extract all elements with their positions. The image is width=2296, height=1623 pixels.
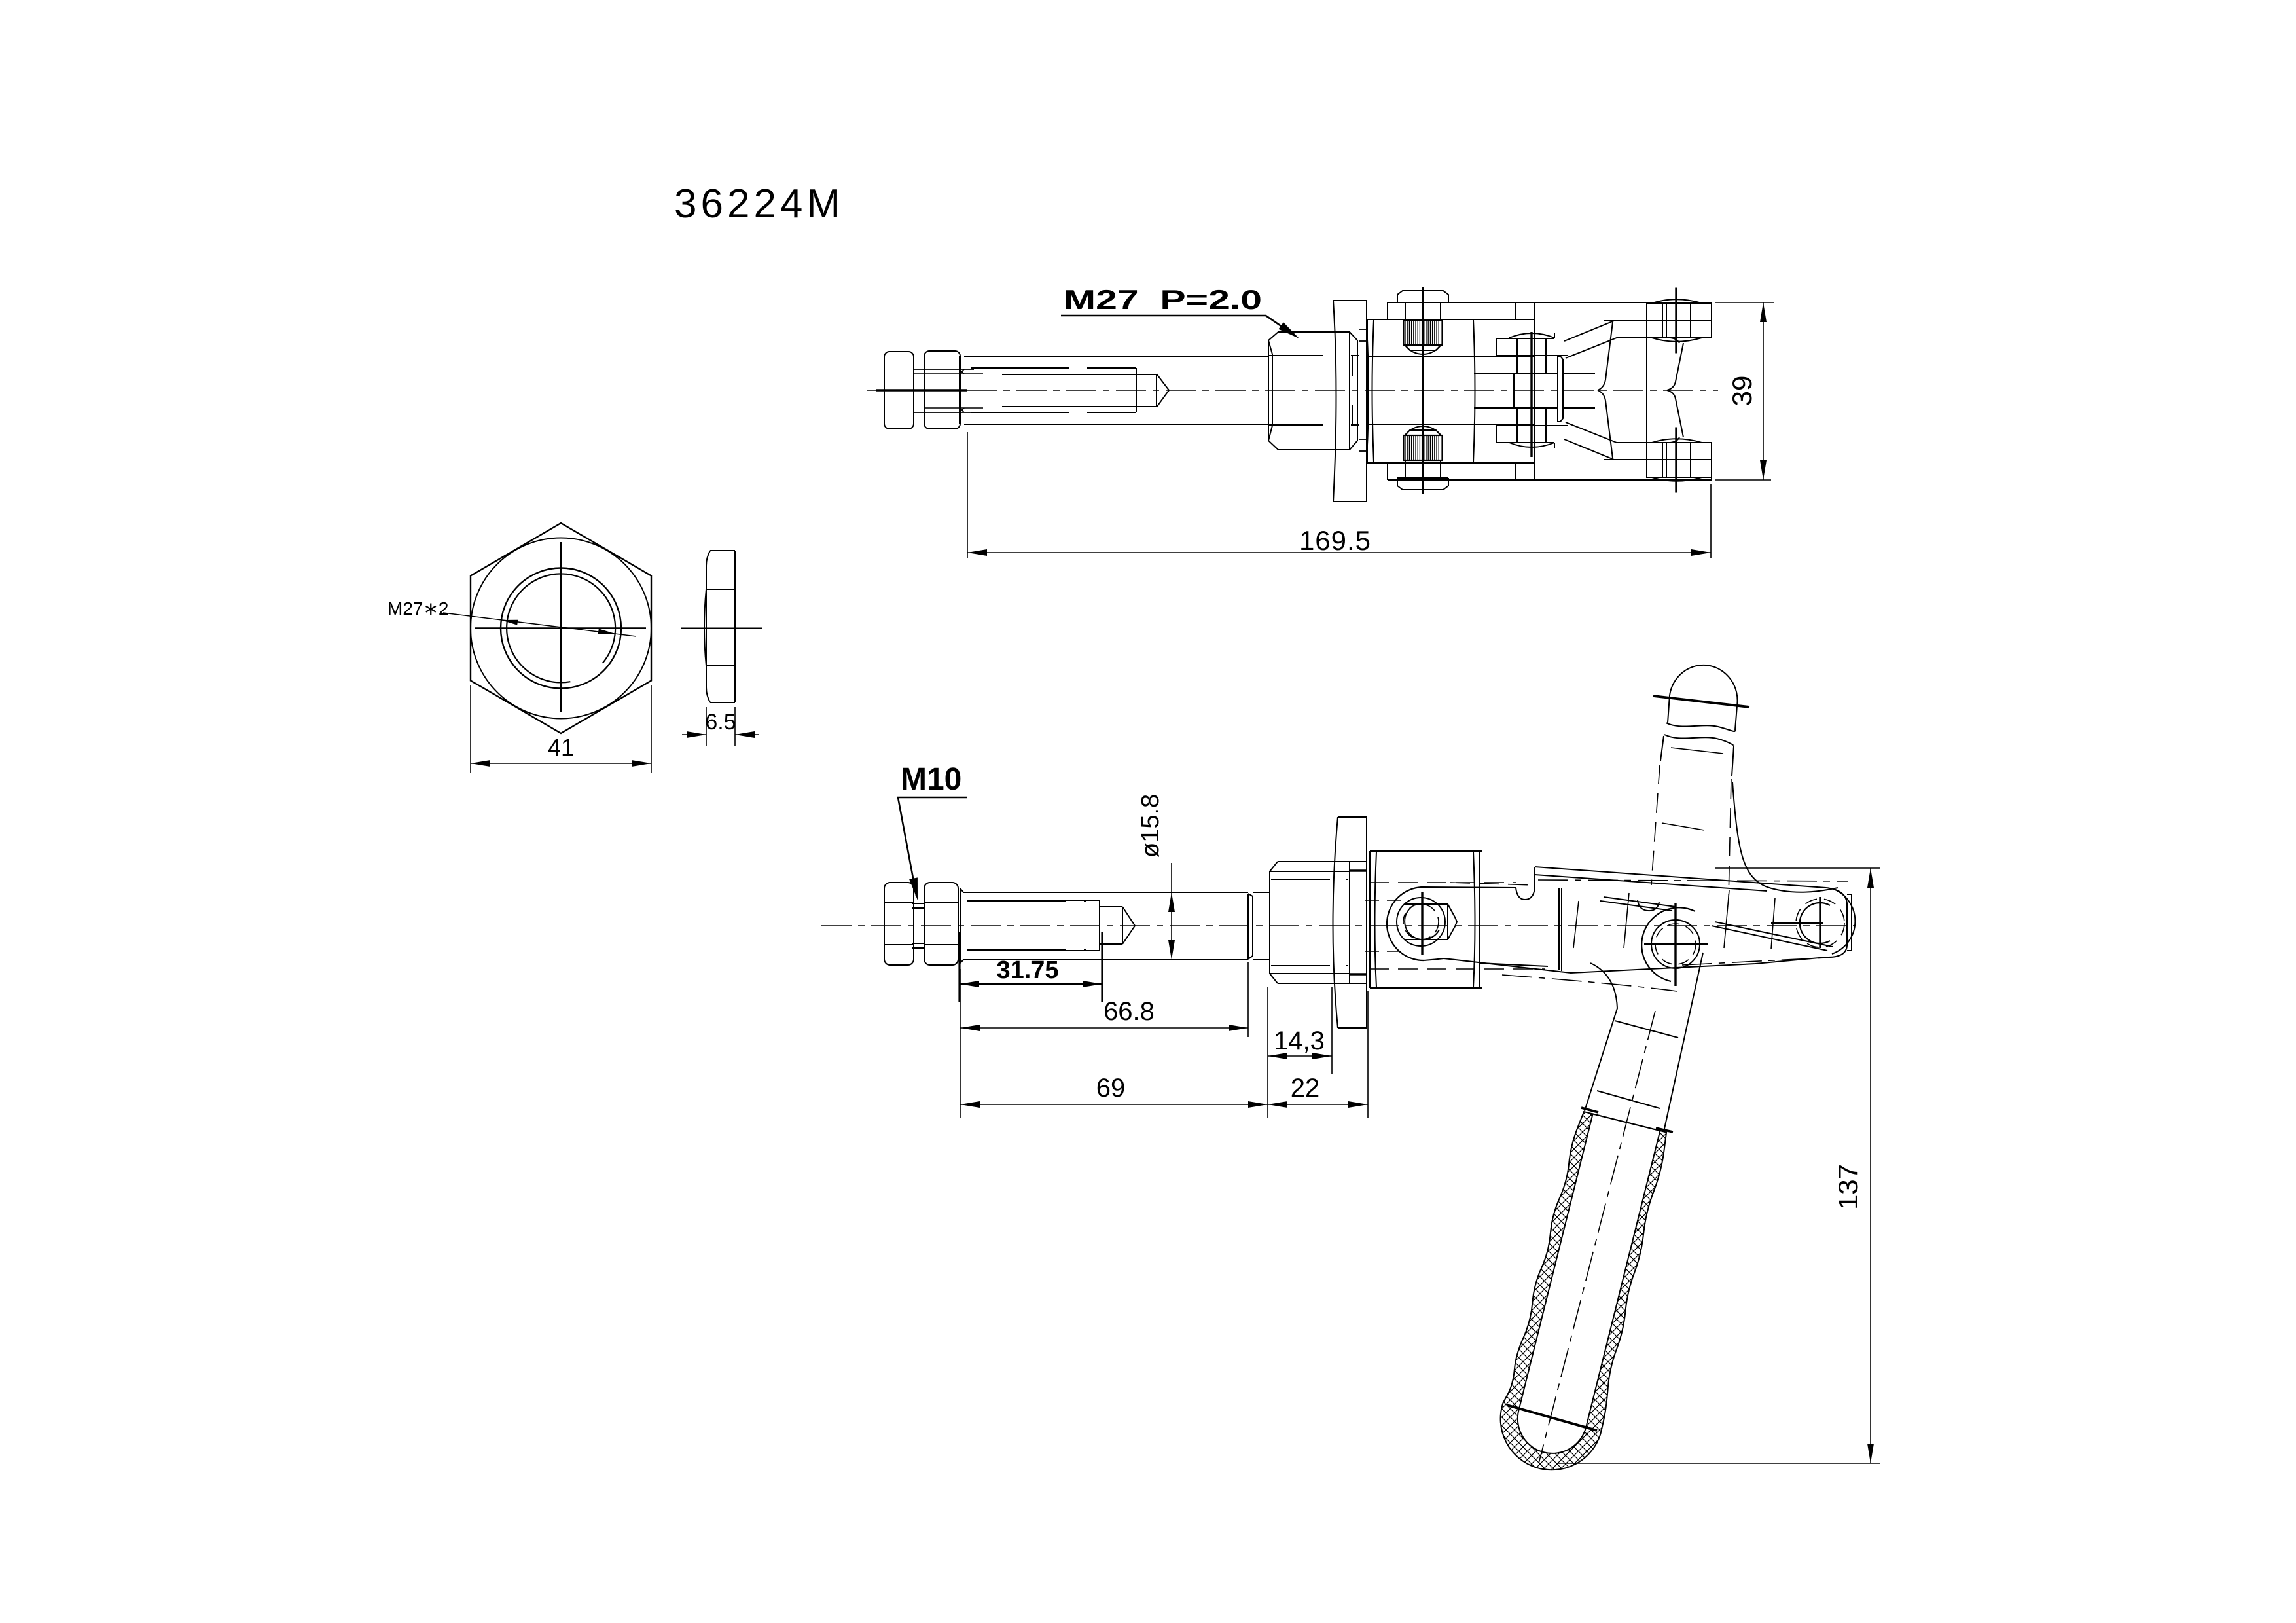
svg-text:ø15.8: ø15.8 [1137,794,1164,858]
svg-text:69: 69 [1096,1074,1126,1103]
svg-text:14,3: 14,3 [1274,1027,1325,1055]
svg-text:6.5: 6.5 [705,710,736,735]
svg-text:22: 22 [1291,1074,1320,1103]
svg-text:39: 39 [1727,376,1757,407]
svg-text:137: 137 [1833,1164,1863,1210]
svg-text:66.8: 66.8 [1103,997,1155,1026]
svg-text:M27 P=2.0: M27 P=2.0 [1064,284,1262,315]
svg-text:36224M: 36224M [674,181,844,227]
svg-text:31.75: 31.75 [996,957,1058,984]
svg-text:M27∗2: M27∗2 [387,598,449,619]
svg-text:169.5: 169.5 [1299,525,1371,556]
svg-text:M10: M10 [901,762,961,797]
svg-text:41: 41 [548,734,574,761]
